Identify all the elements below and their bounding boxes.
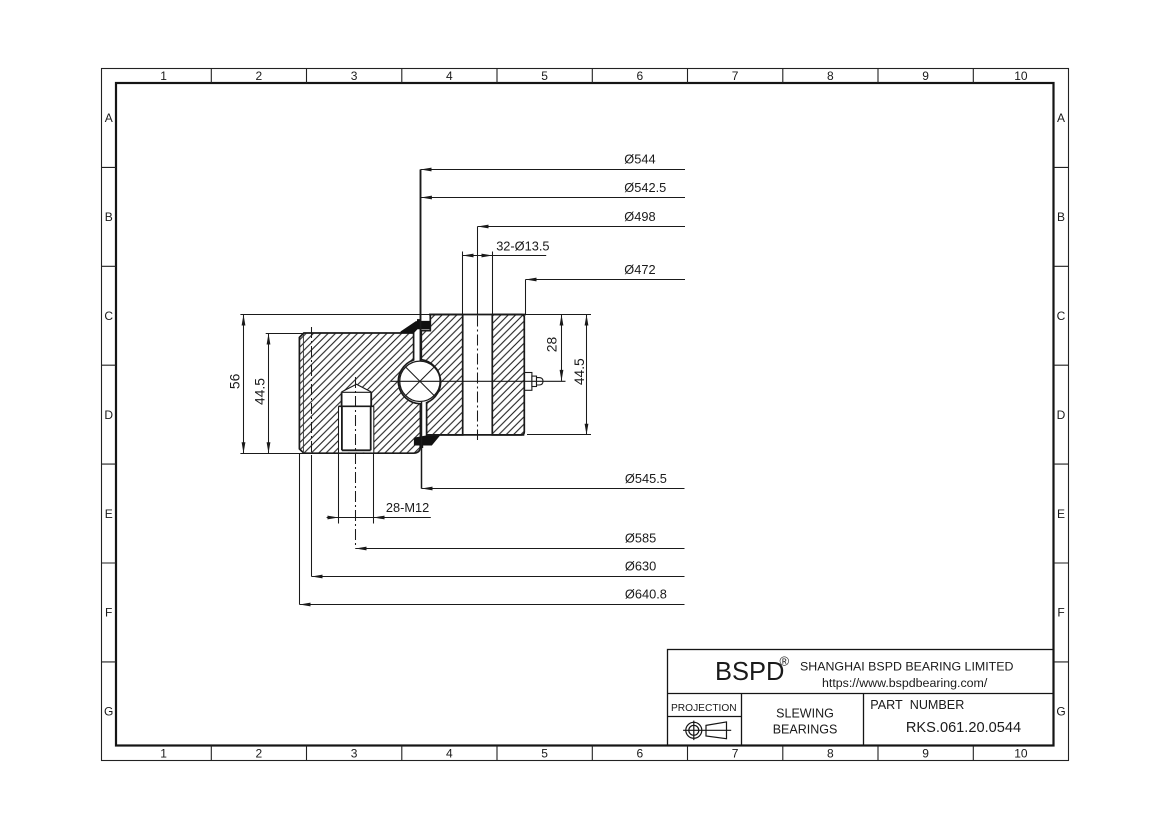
svg-text:8: 8 — [827, 746, 834, 760]
svg-text:PROJECTION: PROJECTION — [671, 703, 737, 714]
svg-text:3: 3 — [351, 69, 358, 83]
svg-text:F: F — [1057, 606, 1064, 620]
svg-text:Ø640.8: Ø640.8 — [625, 587, 667, 602]
svg-text:7: 7 — [732, 746, 739, 760]
svg-text:44.5: 44.5 — [572, 358, 587, 385]
svg-text:Ø542.5: Ø542.5 — [624, 180, 666, 195]
svg-text:2: 2 — [256, 746, 263, 760]
svg-text:1: 1 — [160, 69, 167, 83]
svg-text:F: F — [105, 606, 112, 620]
svg-text:5: 5 — [541, 69, 548, 83]
svg-text:4: 4 — [446, 746, 453, 760]
svg-text:https://www.bspdbearing.com/: https://www.bspdbearing.com/ — [822, 676, 988, 690]
svg-text:4: 4 — [446, 69, 453, 83]
svg-text:BEARINGS: BEARINGS — [773, 723, 838, 737]
svg-text:32-Ø13.5: 32-Ø13.5 — [496, 238, 549, 253]
svg-text:C: C — [1057, 309, 1066, 323]
svg-text:Ø585: Ø585 — [625, 531, 656, 546]
svg-text:G: G — [1056, 705, 1065, 719]
svg-text:®: ® — [780, 654, 790, 669]
svg-text:A: A — [1057, 111, 1065, 125]
svg-text:E: E — [105, 507, 113, 521]
svg-text:Ø498: Ø498 — [624, 209, 655, 224]
svg-text:Ø545.5: Ø545.5 — [625, 471, 667, 486]
svg-text:D: D — [1057, 408, 1066, 422]
svg-text:RKS.061.20.0544: RKS.061.20.0544 — [906, 720, 1021, 736]
svg-text:56: 56 — [228, 373, 243, 389]
svg-text:9: 9 — [922, 746, 929, 760]
svg-text:E: E — [1057, 507, 1065, 521]
svg-text:D: D — [104, 408, 113, 422]
svg-text:8: 8 — [827, 69, 834, 83]
svg-text:SLEWING: SLEWING — [776, 707, 834, 721]
svg-text:7: 7 — [732, 69, 739, 83]
svg-text:C: C — [104, 309, 113, 323]
svg-text:44.5: 44.5 — [252, 378, 267, 405]
svg-text:28-M12: 28-M12 — [386, 500, 429, 515]
svg-text:G: G — [104, 705, 113, 719]
svg-text:5: 5 — [541, 746, 548, 760]
svg-text:SHANGHAI BSPD BEARING LIMITED: SHANGHAI BSPD BEARING LIMITED — [800, 660, 1013, 674]
svg-text:1: 1 — [160, 746, 167, 760]
svg-text:Ø630: Ø630 — [625, 559, 656, 574]
svg-text:BSPD: BSPD — [715, 658, 784, 686]
svg-text:6: 6 — [637, 746, 644, 760]
svg-text:A: A — [105, 111, 113, 125]
svg-text:Ø544: Ø544 — [624, 152, 655, 167]
svg-text:28: 28 — [545, 337, 560, 353]
svg-text:10: 10 — [1014, 69, 1028, 83]
svg-text:2: 2 — [256, 69, 263, 83]
svg-text:9: 9 — [922, 69, 929, 83]
svg-text:3: 3 — [351, 746, 358, 760]
svg-text:6: 6 — [637, 69, 644, 83]
svg-text:B: B — [105, 210, 113, 224]
svg-text:PART NUMBER: PART NUMBER — [870, 698, 964, 712]
svg-text:Ø472: Ø472 — [624, 262, 655, 277]
svg-text:10: 10 — [1014, 746, 1028, 760]
svg-text:B: B — [1057, 210, 1065, 224]
